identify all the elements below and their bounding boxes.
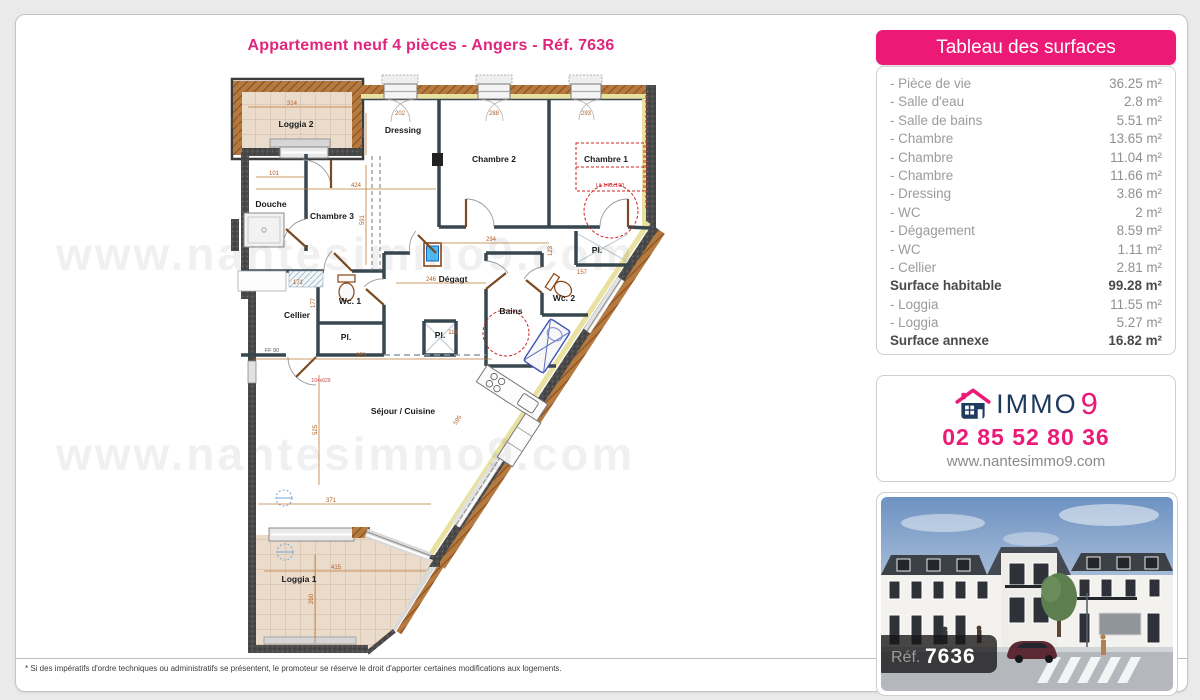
surface-value: 11.66 m²	[1110, 167, 1162, 185]
surface-row-total: Surface habitable99.28 m²	[890, 277, 1162, 295]
flyer-card: Appartement neuf 4 pièces - Angers - Réf…	[15, 14, 1188, 692]
kitchen-counter	[476, 365, 547, 467]
room-label: Pl.	[341, 332, 351, 342]
surface-value: 5.51 m²	[1117, 112, 1162, 130]
surface-label: - Chambre	[890, 167, 953, 185]
surface-row-total: Surface annexe16.82 m²	[890, 332, 1162, 350]
svg-text:294: 294	[486, 237, 497, 243]
surface-label: - Dressing	[890, 185, 951, 203]
svg-text:171: 171	[293, 280, 304, 286]
surface-row: - Cellier2.81 m²	[890, 259, 1162, 277]
svg-text:424: 424	[351, 183, 362, 189]
surface-label: - Loggia	[890, 296, 938, 314]
shower-tray	[244, 213, 284, 247]
room-label: Chambre 3	[310, 211, 354, 221]
svg-text:371: 371	[326, 498, 337, 504]
surface-row: - WC2 m²	[890, 204, 1162, 222]
surface-value: 99.28 m²	[1108, 277, 1162, 295]
svg-text:169: 169	[360, 127, 366, 138]
room-label: Dressing	[385, 125, 421, 135]
phone-number: 02 85 52 80 36	[877, 424, 1175, 451]
surface-label: - Salle d'eau	[890, 93, 964, 111]
svg-text:314: 314	[287, 101, 298, 107]
surface-row: - Chambre11.04 m²	[890, 149, 1162, 167]
bed-annotation: Lit 140x190	[596, 183, 624, 189]
loggia1-structure	[256, 527, 433, 653]
surface-row: - Dressing3.86 m²	[890, 185, 1162, 203]
surface-value: 1.11 m²	[1118, 241, 1162, 259]
agency-logo: IMMO9	[877, 386, 1175, 422]
svg-text:595: 595	[453, 414, 464, 426]
cellier-fixture	[238, 271, 286, 291]
surface-value: 36.25 m²	[1109, 75, 1162, 93]
surfaces-table: - Pièce de vie36.25 m² - Salle d'eau2.8 …	[876, 66, 1176, 355]
surface-row: - Salle de bains5.51 m²	[890, 112, 1162, 130]
svg-text:202: 202	[395, 111, 406, 117]
surface-value: 5.27 m²	[1117, 314, 1162, 332]
surface-row: - Loggia5.27 m²	[890, 314, 1162, 332]
surface-label: - Loggia	[890, 314, 938, 332]
entrance-door-label: FF 90	[265, 348, 279, 354]
svg-text:123: 123	[548, 245, 554, 256]
surface-value: 16.82 m²	[1108, 332, 1162, 350]
surface-label: - Pièce de vie	[890, 75, 971, 93]
svg-text:293: 293	[581, 111, 592, 117]
room-label: Bains	[499, 306, 522, 316]
svg-text:104x629: 104x629	[311, 378, 330, 384]
svg-text:591: 591	[360, 214, 366, 225]
svg-text:288: 288	[489, 111, 500, 117]
room-label: Chambre 2	[472, 154, 516, 164]
svg-text:157: 157	[577, 270, 588, 276]
house-icon	[954, 386, 992, 422]
svg-text:246: 246	[426, 277, 437, 283]
surface-label: - Cellier	[890, 259, 936, 277]
surfaces-header: Tableau des surfaces	[876, 30, 1176, 65]
surface-value: 11.04 m²	[1110, 149, 1162, 167]
svg-text:177: 177	[311, 297, 317, 308]
room-label: Dégagt	[439, 274, 468, 284]
room-label: Loggia 2	[279, 119, 314, 129]
surface-row: - Dégagement8.59 m²	[890, 222, 1162, 240]
technical-shaft	[432, 153, 443, 166]
svg-text:119: 119	[448, 330, 458, 336]
surface-label: - Chambre	[890, 130, 953, 148]
surface-label: - Chambre	[890, 149, 953, 167]
room-label: Douche	[255, 199, 286, 209]
surface-value: 8.59 m²	[1117, 222, 1162, 240]
footnote: * Si des impératifs d'ordre techniques o…	[25, 664, 562, 673]
building-photo-card: Réf. 7636	[876, 492, 1178, 696]
surface-value: 11.55 m²	[1110, 296, 1162, 314]
surface-label: Surface annexe	[890, 332, 989, 350]
surface-row: - Salle d'eau2.8 m²	[890, 93, 1162, 111]
surface-value: 13.65 m²	[1109, 130, 1162, 148]
surface-row: - Chambre11.66 m²	[890, 167, 1162, 185]
dressing-dashed-boundary	[372, 156, 380, 271]
room-label: Pl.	[592, 245, 602, 255]
surface-label: Surface habitable	[890, 277, 1002, 295]
room-label: Cellier	[284, 310, 311, 320]
page: Appartement neuf 4 pièces - Angers - Réf…	[0, 0, 1200, 700]
surface-row: - Pièce de vie36.25 m²	[890, 75, 1162, 93]
building-photo: Réf. 7636	[881, 497, 1173, 691]
surface-row: - WC1.11 m²	[890, 241, 1162, 259]
electrical-shaft	[424, 243, 441, 266]
surface-label: - WC	[890, 241, 921, 259]
agency-card: IMMO9 02 85 52 80 36 www.nantesimmo9.com	[876, 375, 1176, 482]
svg-text:260: 260	[309, 593, 315, 604]
svg-text:101: 101	[269, 171, 280, 177]
room-label: Pl.	[435, 330, 445, 340]
ref-number: 7636	[925, 645, 976, 668]
room-label: Séjour / Cuisine	[371, 406, 436, 416]
surface-value: 3.86 m²	[1117, 185, 1162, 203]
ref-label: Réf.	[891, 649, 920, 666]
svg-text:953: 953	[356, 353, 367, 359]
svg-text:525: 525	[313, 424, 319, 435]
ref-badge: Réf. 7636	[881, 635, 997, 673]
surface-label: - Dégagement	[890, 222, 975, 240]
website-url: www.nantesimmo9.com	[877, 453, 1175, 470]
surface-label: - WC	[890, 204, 921, 222]
surface-value: 2.8 m²	[1124, 93, 1162, 111]
surface-value: 2 m²	[1135, 204, 1162, 222]
surface-row: - Loggia11.55 m²	[890, 296, 1162, 314]
surface-value: 2.81 m²	[1117, 259, 1162, 277]
surface-label: - Salle de bains	[890, 112, 982, 130]
svg-text:415: 415	[331, 565, 342, 571]
brand-text: IMMO	[996, 389, 1078, 420]
room-label: Loggia 1	[282, 574, 317, 584]
room-label: Chambre 1	[584, 154, 628, 164]
room-label: Wc. 1	[339, 296, 361, 306]
svg-text:162: 162	[232, 117, 238, 128]
surface-row: - Chambre13.65 m²	[890, 130, 1162, 148]
room-label: Wc. 2	[553, 293, 575, 303]
brand-digit: 9	[1081, 386, 1098, 422]
